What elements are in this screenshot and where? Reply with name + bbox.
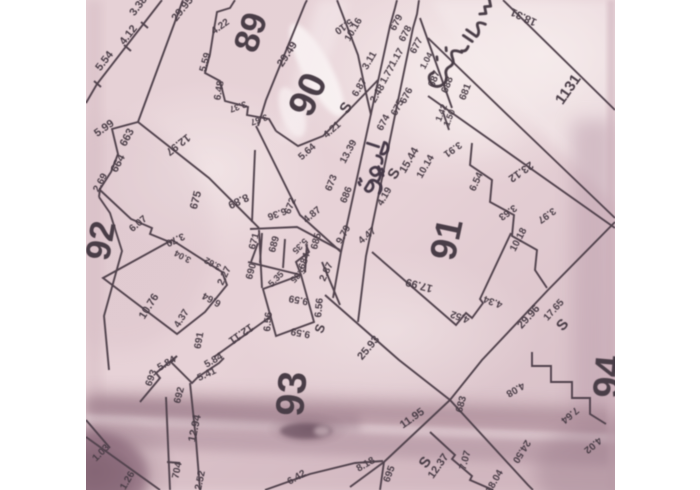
svg-text:91: 91	[422, 215, 471, 264]
svg-text:6.56: 6.56	[262, 311, 275, 332]
svg-text:6.56: 6.56	[313, 297, 326, 318]
svg-text:93: 93	[268, 370, 316, 418]
